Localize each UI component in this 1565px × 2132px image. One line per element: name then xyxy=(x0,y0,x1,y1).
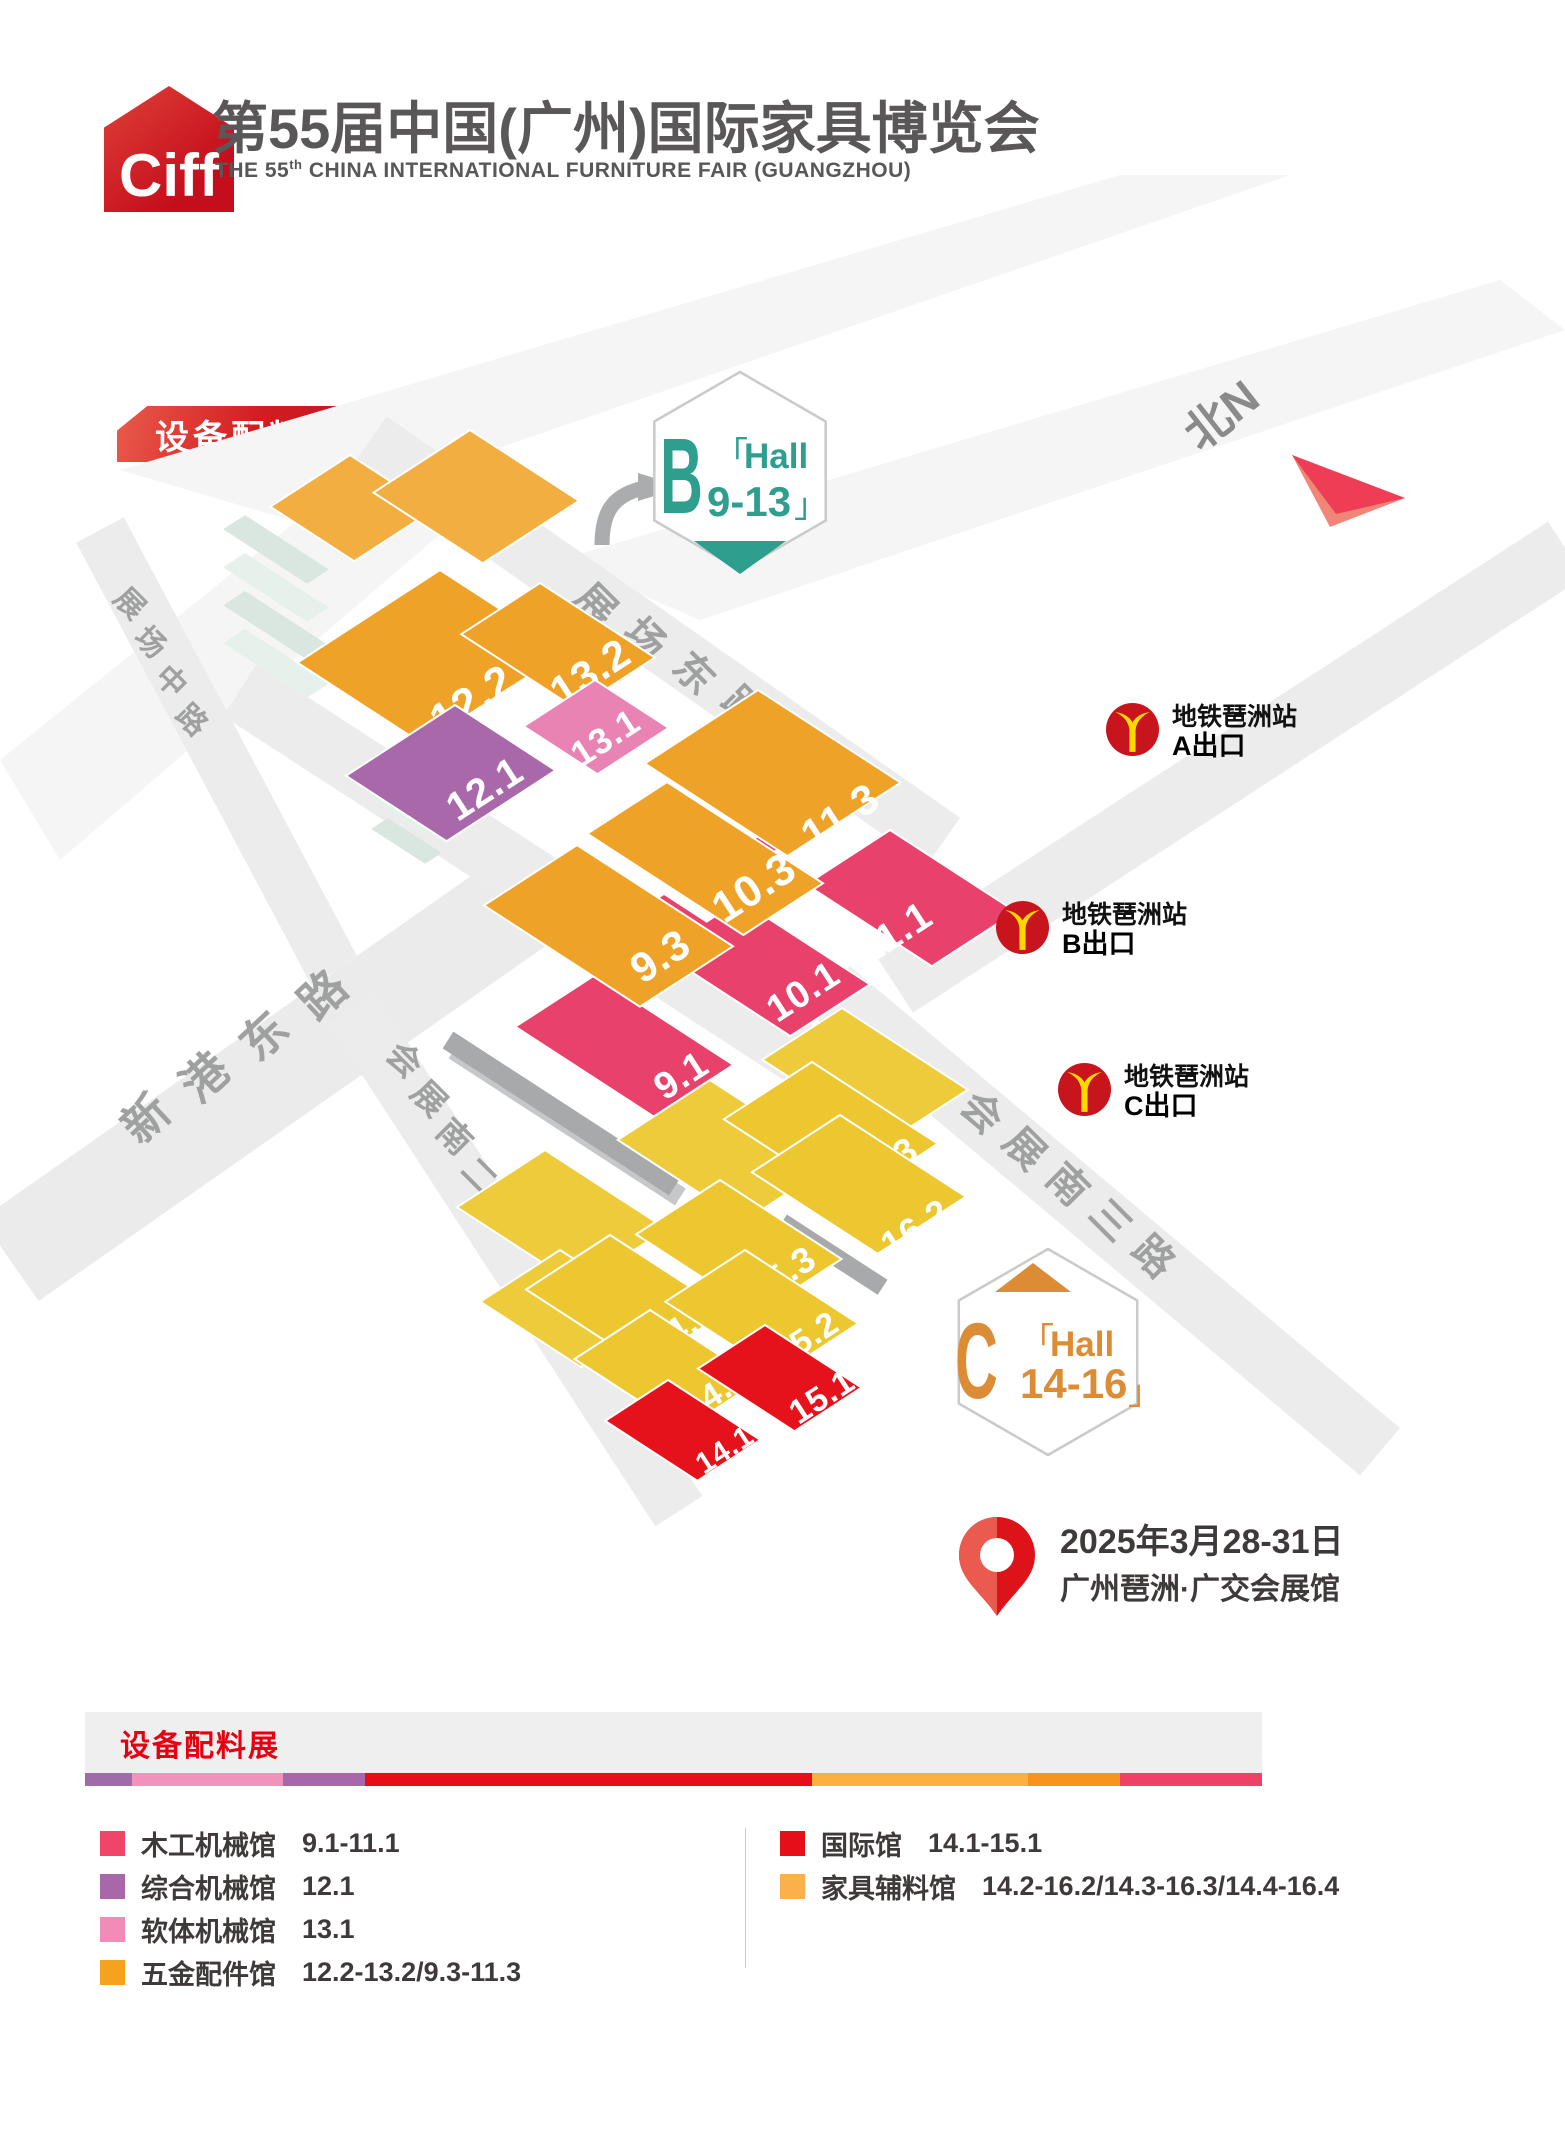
legend-divider xyxy=(745,1828,746,1968)
legend-swatch xyxy=(100,1917,125,1942)
metro-exit-c-marker: 地铁琶洲站 C出口 xyxy=(1058,1063,1249,1121)
legend-item-range: 14.1-15.1 xyxy=(928,1828,1042,1859)
legend-item-name: 家具辅料馆 xyxy=(821,1867,956,1906)
legend-swatch xyxy=(100,1960,125,1985)
event-date: 2025年3月28-31日 xyxy=(1060,1518,1344,1566)
legend-item: 综合机械馆 12.1 xyxy=(100,1873,521,1899)
legend-item-range: 12.1 xyxy=(302,1871,355,1902)
legend-item-range: 13.1 xyxy=(302,1914,355,1945)
legend-item: 木工机械馆 9.1-11.1 xyxy=(100,1830,521,1856)
legend-item-name: 五金配件馆 xyxy=(141,1953,276,1992)
metro-station-name: 地铁琶洲站 xyxy=(1172,703,1297,732)
hall-badge-b-letter: B xyxy=(660,416,703,536)
hall-badge-b-range: 9-13 xyxy=(707,478,791,525)
metro-station-name: 地铁琶洲站 xyxy=(1062,901,1187,930)
legend-item: 五金配件馆 12.2-13.2/9.3-11.3 xyxy=(100,1959,521,1985)
location-pin-icon xyxy=(952,1506,1042,1621)
road-northeast xyxy=(877,522,1565,1013)
event-venue: 广州琶洲·广交会展馆 xyxy=(1060,1566,1344,1614)
legend-bar-segment xyxy=(365,1773,812,1786)
page: Ciff 第55届中国(广州)国际家具博览会 THE 55th CHINA IN… xyxy=(0,0,1565,2132)
legend-bar-segment xyxy=(1120,1773,1262,1786)
metro-icon xyxy=(1106,703,1159,756)
event-info: 2025年3月28-31日 广州琶洲·广交会展馆 xyxy=(1060,1518,1344,1614)
metro-icon xyxy=(1058,1063,1111,1116)
hall-13-1: 13.1 xyxy=(524,680,669,775)
legend-header: 设备配料展 xyxy=(85,1712,1262,1773)
metro-exit-a-marker: 地铁琶洲站 A出口 xyxy=(1106,703,1297,761)
legend-bar-segment xyxy=(283,1773,365,1786)
legend-item-range: 14.2-16.2/14.3-16.3/14.4-16.4 xyxy=(982,1871,1339,1902)
legend-bar-segment xyxy=(85,1773,132,1786)
legend-item-name: 国际馆 xyxy=(821,1824,902,1863)
legend-bar-segment xyxy=(132,1773,283,1786)
legend-swatch xyxy=(780,1874,805,1899)
bracket-close: 」 xyxy=(1128,1374,1162,1412)
bracket-close: 」 xyxy=(794,487,828,525)
hall-badge-c-word: Hall xyxy=(1050,1325,1114,1364)
metro-station-name: 地铁琶洲站 xyxy=(1124,1063,1249,1092)
legend-item-name: 综合机械馆 xyxy=(141,1867,276,1906)
bracket-open: 「 xyxy=(714,436,748,474)
legend-bar-segment xyxy=(812,1773,1028,1786)
metro-exit-b-marker: 地铁琶洲站 B出口 xyxy=(996,901,1187,959)
legend-title: 设备配料展 xyxy=(120,1721,280,1765)
hall-badge-c-letter: C xyxy=(955,1301,998,1421)
legend-item: 软体机械馆 13.1 xyxy=(100,1916,521,1942)
metro-exit-label: A出口 xyxy=(1172,732,1297,761)
metro-exit-label: B出口 xyxy=(1062,930,1187,959)
hall-badge-c-range: 14-16 xyxy=(1020,1360,1127,1407)
metro-icon xyxy=(996,901,1049,954)
legend-swatch xyxy=(780,1831,805,1856)
legend-swatch xyxy=(100,1831,125,1856)
legend-item-range: 9.1-11.1 xyxy=(302,1828,400,1859)
legend-item: 家具辅料馆 14.2-16.2/14.3-16.3/14.4-16.4 xyxy=(780,1873,1339,1899)
bracket-open: 「 xyxy=(1020,1322,1054,1360)
legend-swatch xyxy=(100,1874,125,1899)
legend-item-name: 软体机械馆 xyxy=(141,1910,276,1949)
legend-bar-segment xyxy=(1028,1773,1120,1786)
legend-color-bar xyxy=(85,1773,1262,1786)
legend-item-range: 12.2-13.2/9.3-11.3 xyxy=(302,1957,521,1988)
legend-panel: 设备配料展 木工机械馆 9.1-11.1 综合机械馆 12.1 xyxy=(85,1712,1262,1966)
legend-item-name: 木工机械馆 xyxy=(141,1824,276,1863)
metro-exit-label: C出口 xyxy=(1124,1092,1249,1121)
legend-items: 木工机械馆 9.1-11.1 综合机械馆 12.1 软体机械馆 13.1 五金配… xyxy=(85,1786,1262,1966)
legend-item: 国际馆 14.1-15.1 xyxy=(780,1830,1339,1856)
hall-badge-b-word: Hall xyxy=(744,437,808,476)
